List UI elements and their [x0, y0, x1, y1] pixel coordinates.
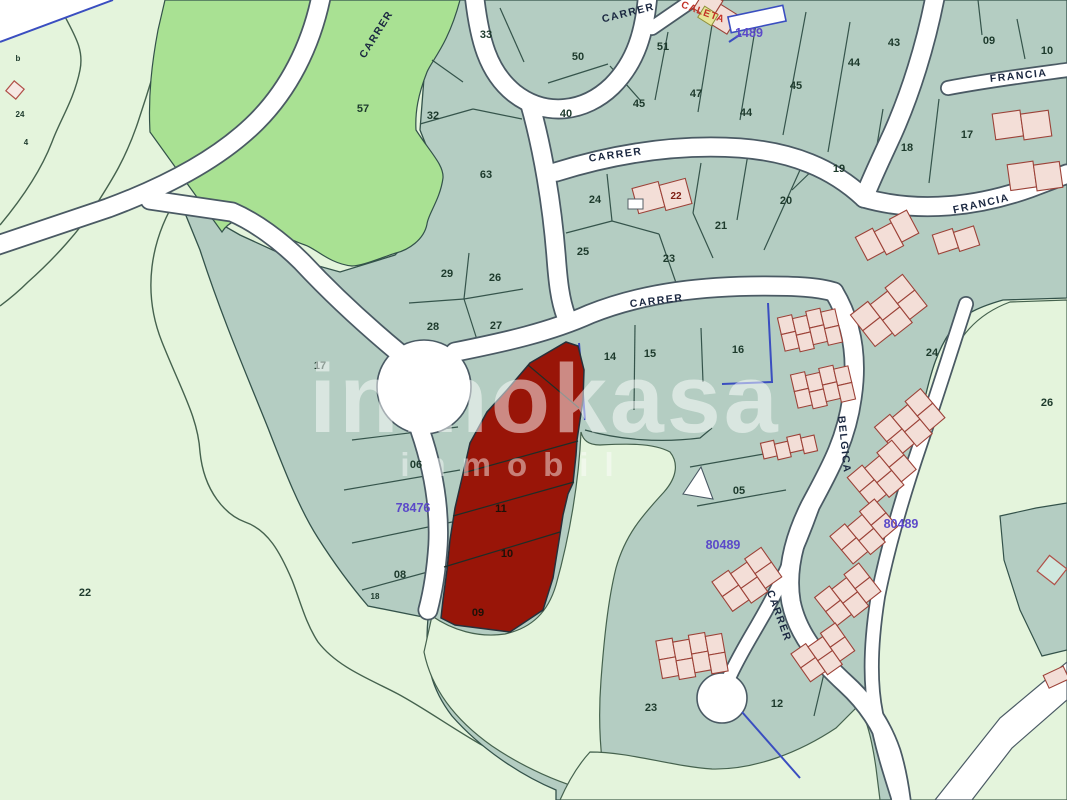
- parcel-number-label: 24: [16, 110, 25, 119]
- parcel-number-label: 11: [495, 503, 507, 515]
- building-labels-layer: 22: [670, 191, 682, 202]
- parcel-number-label: 50: [572, 51, 584, 63]
- parcel-number-label: 19: [833, 163, 845, 175]
- cadastral-ref-label: 1489: [735, 26, 763, 40]
- parcel-number-label: 45: [790, 80, 802, 92]
- parcel-number-label: 32: [427, 110, 439, 122]
- parcel-number-label: 23: [663, 253, 675, 265]
- parcel-number-label: 27: [490, 320, 502, 332]
- cadastral-ref-label: 78476: [396, 501, 431, 515]
- parcel-number-label: 47: [690, 88, 702, 100]
- parcel-number-label: 40: [560, 108, 572, 120]
- cadastral-ref-label: 80489: [706, 538, 741, 552]
- cadastral-map[interactable]: CARRERCARRERCARRERFRANCIAFRANCIACARRERBE…: [0, 0, 1067, 800]
- parcel-number-label: 28: [427, 321, 439, 333]
- parcel-number-label: 57: [357, 103, 369, 115]
- parcel-number-label: 44: [848, 57, 861, 69]
- parcel-number-label: 05: [733, 485, 745, 497]
- parcel-number-label: 17: [961, 129, 973, 141]
- parcel-number-label: 12: [771, 698, 783, 710]
- parcel-number-label: 51: [657, 41, 669, 53]
- cadastral-ref-label: 80489: [884, 517, 919, 531]
- parcel-number-label: 09: [983, 35, 995, 47]
- parcel-number-label: 63: [480, 169, 492, 181]
- parcel-number-label: 21: [715, 220, 727, 232]
- building-white-small: [628, 199, 643, 209]
- map-viewport: CARRERCARRERCARRERFRANCIAFRANCIACARRERBE…: [0, 0, 1067, 800]
- parcel-number-label: 4: [24, 138, 29, 147]
- parcel-number-label: 10: [501, 548, 513, 560]
- parcel-number-label: 44: [740, 107, 753, 119]
- parcel-number-label: 20: [780, 195, 792, 207]
- parcel-number-label: 18: [371, 592, 380, 601]
- parcel-number-label: 18: [901, 142, 913, 154]
- parcel-number-label: 24: [926, 347, 939, 359]
- parcel-number-label: 25: [577, 246, 589, 258]
- watermark-brand: inmokasa: [309, 344, 781, 453]
- watermark-subtitle: inmobil: [400, 446, 629, 483]
- parcel-number-label: 43: [888, 37, 900, 49]
- parcel-number-label: 26: [1041, 397, 1053, 409]
- parcel-number-label: 22: [79, 587, 91, 599]
- parcel-number-label: 10: [1041, 45, 1053, 57]
- parcel-number-label: 24: [589, 194, 602, 206]
- building-number-label: 22: [670, 191, 682, 202]
- parcel-number-label: 09: [472, 607, 484, 619]
- parcel-number-label: 45: [633, 98, 645, 110]
- parcel-number-label: 23: [645, 702, 657, 714]
- parcel-number-label: 08: [394, 569, 406, 581]
- parcel-number-label: 26: [489, 272, 501, 284]
- parcel-number-label: b: [16, 54, 21, 63]
- parcel-number-label: 33: [480, 29, 492, 41]
- parcel-number-label: 29: [441, 268, 453, 280]
